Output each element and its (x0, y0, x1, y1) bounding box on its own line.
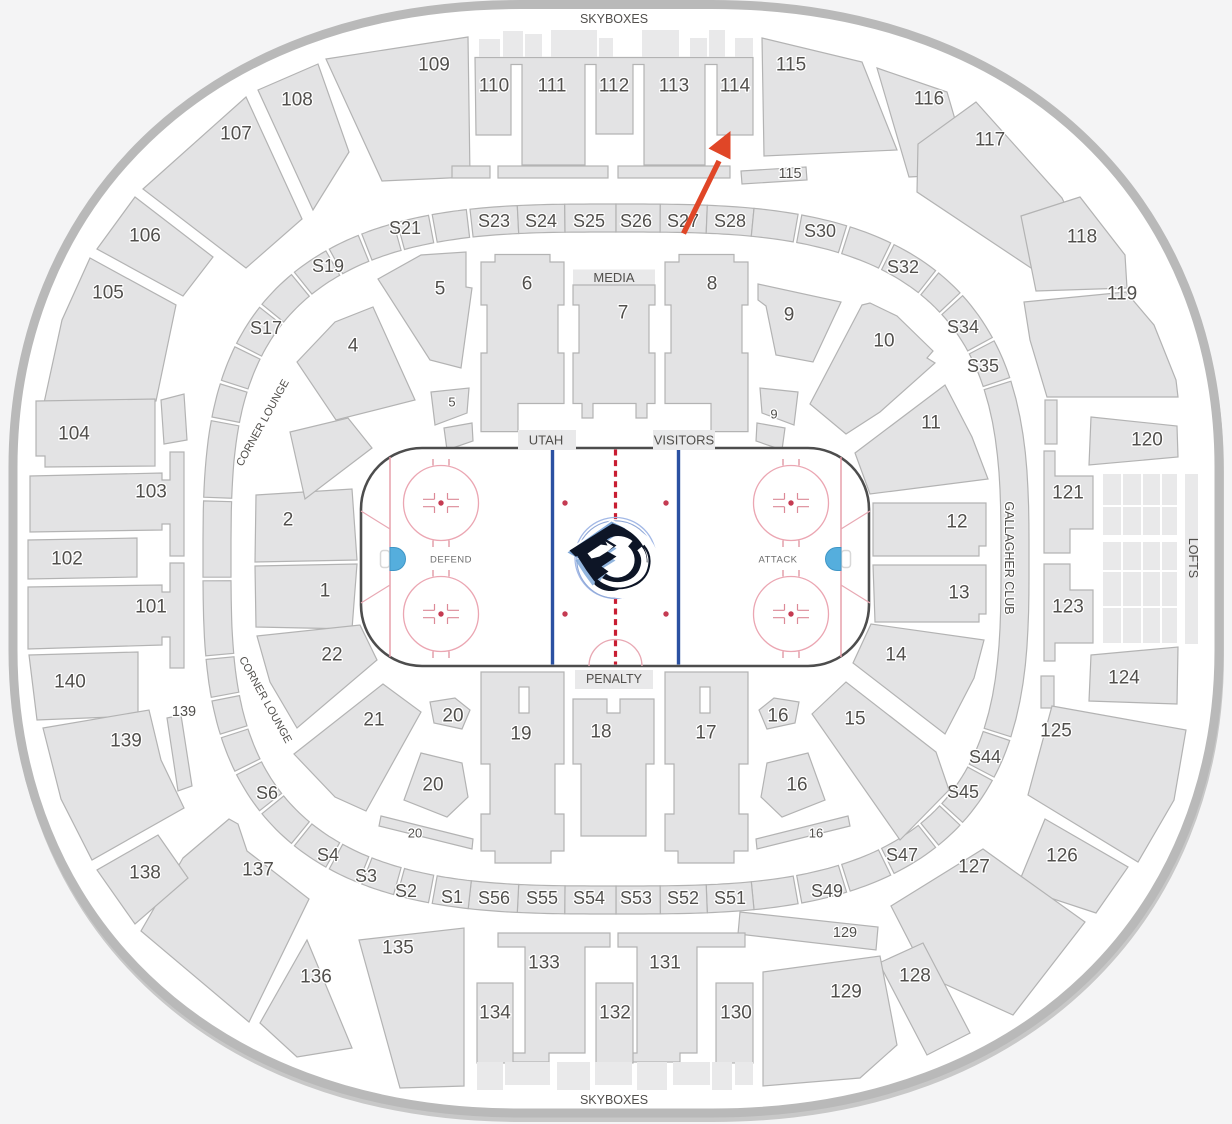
svg-text:S47: S47 (886, 845, 918, 865)
svg-text:11: 11 (921, 413, 941, 434)
svg-text:14: 14 (885, 645, 907, 666)
svg-text:S51: S51 (714, 888, 746, 908)
svg-text:S35: S35 (967, 356, 999, 376)
svg-text:140: 140 (54, 672, 86, 693)
svg-text:S30: S30 (804, 221, 836, 241)
svg-text:5: 5 (435, 279, 446, 300)
svg-text:131: 131 (649, 953, 681, 974)
svg-text:113: 113 (659, 76, 689, 97)
svg-text:9: 9 (784, 305, 795, 326)
svg-text:112: 112 (599, 76, 629, 97)
svg-text:16: 16 (809, 826, 823, 841)
svg-text:120: 120 (1131, 430, 1163, 451)
svg-text:119: 119 (1107, 284, 1137, 305)
svg-text:7: 7 (618, 303, 629, 324)
svg-text:S34: S34 (947, 317, 979, 337)
svg-text:121: 121 (1052, 483, 1084, 504)
svg-text:106: 106 (129, 226, 161, 247)
svg-text:117: 117 (975, 130, 1005, 151)
svg-text:129: 129 (830, 982, 862, 1003)
svg-text:S19: S19 (312, 256, 344, 276)
svg-text:130: 130 (720, 1003, 752, 1024)
svg-text:123: 123 (1052, 597, 1084, 618)
svg-text:9: 9 (770, 407, 777, 422)
svg-text:115: 115 (778, 166, 801, 182)
svg-text:S6: S6 (256, 783, 278, 803)
svg-text:108: 108 (281, 90, 313, 111)
svg-text:101: 101 (135, 597, 167, 618)
svg-text:135: 135 (382, 938, 414, 959)
svg-text:102: 102 (51, 549, 83, 570)
svg-text:118: 118 (1067, 227, 1097, 248)
svg-text:6: 6 (522, 274, 533, 295)
svg-text:8: 8 (707, 274, 718, 295)
svg-text:SKYBOXES: SKYBOXES (580, 12, 648, 26)
svg-text:109: 109 (418, 55, 450, 76)
svg-text:137: 137 (242, 860, 274, 881)
svg-text:S1: S1 (441, 887, 463, 907)
svg-text:139: 139 (110, 731, 142, 752)
svg-text:S53: S53 (620, 888, 652, 908)
svg-text:S56: S56 (478, 888, 510, 908)
svg-text:15: 15 (844, 709, 865, 730)
svg-text:21: 21 (363, 710, 384, 731)
svg-text:12: 12 (946, 512, 967, 533)
svg-text:S55: S55 (526, 888, 558, 908)
svg-text:127: 127 (958, 857, 990, 878)
svg-text:2: 2 (283, 510, 294, 531)
svg-text:116: 116 (914, 89, 944, 110)
svg-text:125: 125 (1040, 721, 1072, 742)
svg-text:16: 16 (767, 706, 788, 727)
svg-text:111: 111 (538, 76, 567, 97)
svg-text:18: 18 (590, 722, 611, 743)
svg-text:124: 124 (1108, 668, 1140, 689)
svg-text:S21: S21 (389, 218, 421, 238)
svg-text:S26: S26 (620, 211, 652, 231)
svg-text:ATTACK: ATTACK (758, 555, 797, 566)
svg-text:S23: S23 (478, 211, 510, 231)
svg-text:S25: S25 (573, 211, 605, 231)
svg-text:S4: S4 (317, 845, 339, 865)
svg-text:S2: S2 (395, 881, 417, 901)
svg-text:4: 4 (348, 336, 359, 357)
svg-text:SKYBOXES: SKYBOXES (580, 1093, 648, 1107)
svg-text:10: 10 (873, 331, 894, 352)
svg-text:13: 13 (948, 583, 969, 604)
svg-text:1: 1 (320, 581, 331, 602)
svg-text:MEDIA: MEDIA (593, 270, 635, 285)
svg-text:104: 104 (58, 424, 90, 445)
svg-text:126: 126 (1046, 846, 1078, 867)
svg-text:S28: S28 (714, 211, 746, 231)
svg-text:20: 20 (442, 706, 463, 727)
svg-text:105: 105 (92, 283, 124, 304)
svg-text:PENALTY: PENALTY (586, 672, 643, 686)
svg-text:16: 16 (786, 775, 807, 796)
svg-text:107: 107 (220, 124, 252, 145)
svg-text:S45: S45 (947, 782, 979, 802)
svg-text:19: 19 (510, 724, 531, 745)
svg-text:LOFTS: LOFTS (1186, 538, 1200, 578)
svg-text:UTAH: UTAH (529, 433, 563, 448)
svg-text:S52: S52 (667, 888, 699, 908)
svg-text:115: 115 (776, 55, 806, 76)
svg-text:110: 110 (479, 76, 509, 97)
svg-text:S17: S17 (250, 318, 282, 338)
svg-text:103: 103 (135, 482, 167, 503)
svg-text:139: 139 (172, 704, 196, 720)
svg-text:17: 17 (695, 723, 716, 744)
svg-text:133: 133 (528, 953, 560, 974)
svg-text:5: 5 (448, 395, 455, 410)
svg-text:138: 138 (129, 863, 161, 884)
svg-text:114: 114 (720, 76, 751, 97)
svg-text:S32: S32 (887, 257, 919, 277)
svg-text:S24: S24 (525, 211, 557, 231)
svg-text:136: 136 (300, 967, 332, 988)
svg-text:132: 132 (599, 1003, 631, 1024)
svg-text:GALLAGHER CLUB: GALLAGHER CLUB (1002, 501, 1016, 614)
svg-text:S44: S44 (969, 747, 1001, 767)
svg-text:128: 128 (899, 966, 931, 987)
svg-text:22: 22 (321, 645, 342, 666)
svg-text:S54: S54 (573, 888, 605, 908)
svg-text:VISITORS: VISITORS (654, 433, 715, 448)
svg-text:S3: S3 (355, 866, 377, 886)
svg-text:134: 134 (479, 1003, 511, 1024)
svg-text:129: 129 (833, 925, 857, 941)
svg-text:20: 20 (422, 775, 443, 796)
svg-text:DEFEND: DEFEND (430, 555, 472, 566)
svg-text:20: 20 (408, 826, 422, 841)
svg-text:S49: S49 (811, 881, 843, 901)
